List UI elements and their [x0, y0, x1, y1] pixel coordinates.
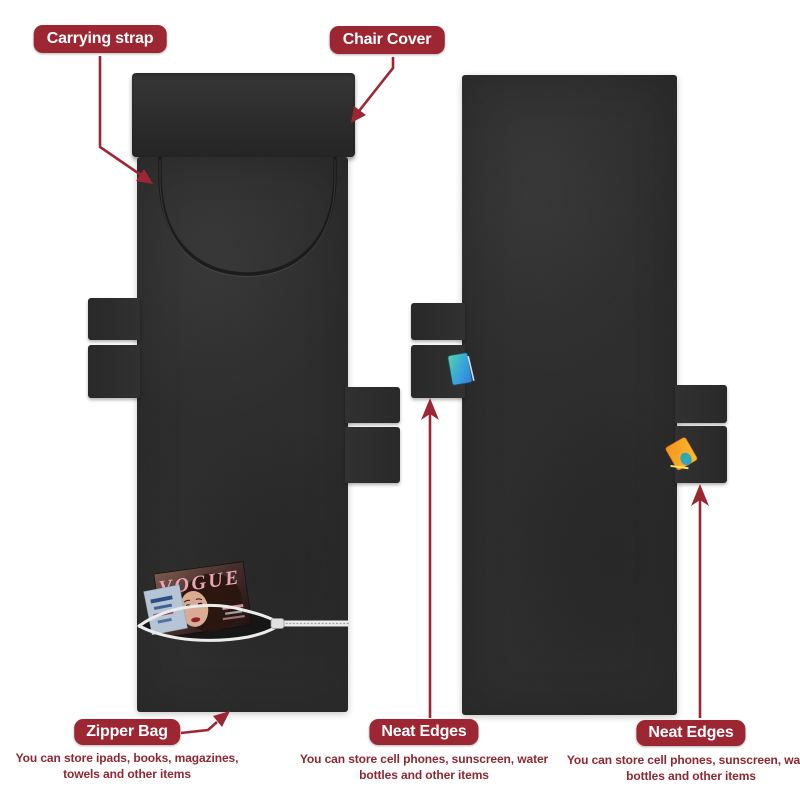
- arrow-neat-edges-left: [421, 398, 439, 718]
- callout-neat-edges-left-label: Neat Edges: [381, 723, 466, 740]
- callout-chair-cover-label: Chair Cover: [343, 31, 432, 48]
- callout-carrying-strap-label: Carrying strap: [47, 30, 154, 47]
- right-cover-left-pocket-tab-2: [411, 345, 465, 398]
- right-cover-right-pocket-tab-2: [675, 426, 727, 483]
- callout-neat-edges-right-label: Neat Edges: [648, 724, 733, 741]
- right-cover-right-pocket-tab-1: [675, 385, 727, 423]
- left-cover-left-pocket-tab-1: [88, 298, 140, 340]
- callout-neat-edges-left: Neat Edges: [369, 719, 478, 745]
- description-neat-edges-right: You can store cell phones, sunscreen, wa…: [561, 753, 800, 785]
- callout-neat-edges-right: Neat Edges: [636, 720, 745, 746]
- left-cover-body: [137, 157, 348, 712]
- left-cover-right-pocket-tab-2: [345, 427, 400, 483]
- description-zipper-bag: You can store ipads, books, magazines, t…: [0, 751, 257, 783]
- callout-carrying-strap: Carrying strap: [34, 25, 167, 53]
- callout-chair-cover: Chair Cover: [330, 26, 445, 54]
- left-cover-top-flap: [132, 73, 355, 157]
- product-showcase: VOGUE: [0, 0, 800, 800]
- description-neat-edges-left: You can store cell phones, sunscreen, wa…: [294, 752, 554, 784]
- left-cover-left-pocket-tab-2: [88, 345, 140, 398]
- callout-zipper-bag-label: Zipper Bag: [86, 723, 168, 740]
- callout-zipper-bag: Zipper Bag: [74, 719, 180, 745]
- left-cover-right-pocket-tab-1: [345, 387, 400, 423]
- right-cover-body: [462, 75, 677, 715]
- arrow-chair-cover: [351, 57, 393, 123]
- arrow-neat-edges-right: [691, 484, 709, 718]
- right-cover-left-pocket-tab-1: [411, 303, 465, 340]
- arrow-zipper-bag: [181, 711, 230, 733]
